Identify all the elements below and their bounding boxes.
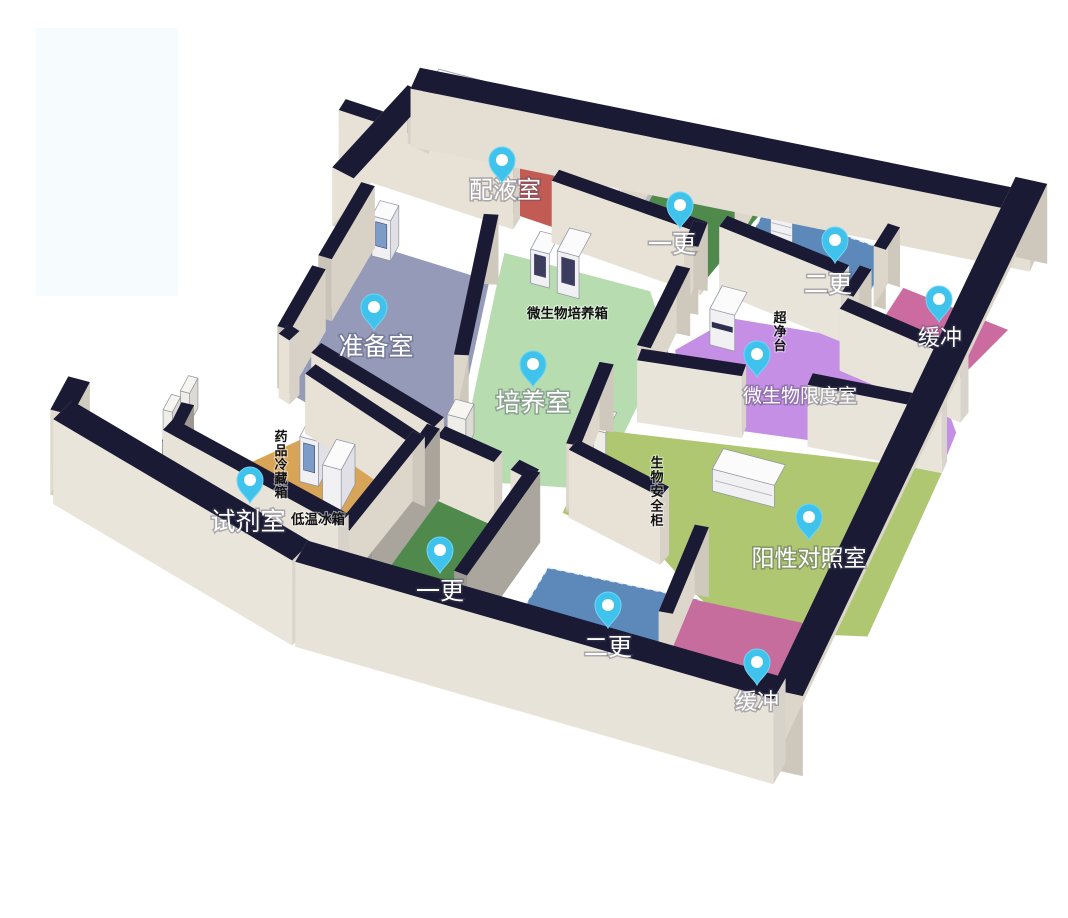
storage-cabinet	[372, 201, 399, 261]
room-label-weishengwu_xiandushi: 微生物限度室	[743, 385, 857, 407]
equipment-label-shengwu_anquangui: 生物安全柜	[649, 455, 664, 528]
equipment-label-yaopin_lengcangxiang: 药品冷藏箱	[274, 429, 287, 500]
room-label-yigeng_bottom: 一更	[416, 578, 464, 605]
room-label-huanchong_bottom: 缓冲	[735, 689, 779, 714]
equipment-label-weishengwu_peiyangxiang: 微生物培养箱	[526, 305, 608, 321]
watermark-overlay	[36, 28, 178, 296]
equipment-label-chaojingtai: 超净台	[773, 310, 787, 353]
room-label-yigeng_top: 一更	[648, 231, 696, 258]
floorplan-svg: 微生物培养箱超净台药品冷藏箱低温冰箱生物安全柜配液室一更二更缓冲准备室培养室微生…	[0, 0, 1068, 918]
room-label-peiyeshi: 配液室	[469, 177, 541, 204]
floorplan-canvas: 微生物培养箱超净台药品冷藏箱低温冰箱生物安全柜配液室一更二更缓冲准备室培养室微生…	[0, 0, 1068, 918]
room-label-ergeng_bottom: 二更	[584, 634, 632, 661]
room-label-peiyangshi: 培养室	[495, 389, 570, 417]
room-label-huanchong_top: 缓冲	[918, 325, 962, 350]
equipment-label-diwen_bingxiang: 低温冰箱	[290, 511, 345, 527]
room-label-ergeng_top: 二更	[804, 271, 852, 298]
room-label-yangxing_duizhaoshi: 阳性对照室	[752, 545, 867, 571]
room-label-zhunbeishi: 准备室	[338, 333, 413, 361]
room-label-shijishi: 试剂室	[210, 508, 285, 536]
